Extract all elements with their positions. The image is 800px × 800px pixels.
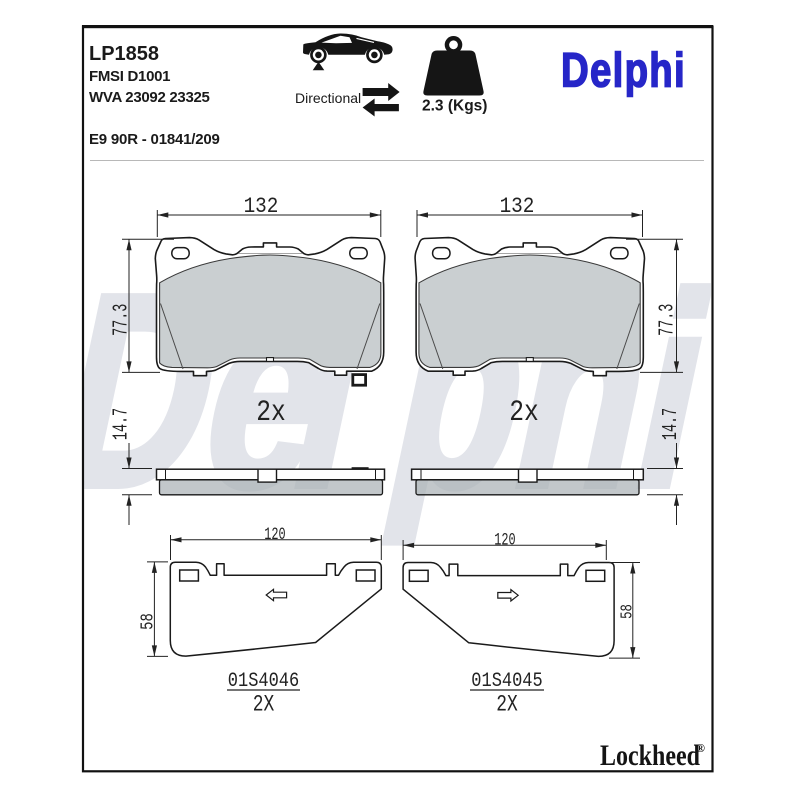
svg-text:132: 132 [500,195,535,219]
svg-text:58: 58 [136,613,157,630]
svg-text:58: 58 [619,604,637,619]
svg-text:2x: 2x [509,396,539,430]
svg-text:FMSI D1001: FMSI D1001 [89,68,170,85]
svg-text:Lockheed: Lockheed [600,738,700,771]
svg-text:2X: 2X [253,693,275,719]
svg-text:132: 132 [244,195,279,219]
svg-text:120: 120 [494,529,515,550]
svg-text:77.3: 77.3 [110,304,134,336]
svg-text:01S4046: 01S4046 [228,670,299,693]
svg-text:2.3 (Kgs): 2.3 (Kgs) [422,98,487,115]
svg-text:14.7: 14.7 [110,408,134,440]
svg-text:®: ® [696,741,705,755]
svg-text:Delphi: Delphi [561,45,686,98]
svg-text:120: 120 [264,523,285,544]
svg-text:14.7: 14.7 [659,408,683,440]
svg-text:Directional: Directional [295,90,361,106]
svg-text:LP1858: LP1858 [89,43,159,65]
svg-text:WVA 23092 23325: WVA 23092 23325 [89,89,210,106]
svg-text:E9 90R - 01841/209: E9 90R - 01841/209 [89,131,220,148]
svg-text:2x: 2x [256,396,286,430]
svg-text:01S4045: 01S4045 [471,670,542,693]
svg-text:77.3: 77.3 [656,304,680,336]
svg-text:2X: 2X [496,693,518,719]
